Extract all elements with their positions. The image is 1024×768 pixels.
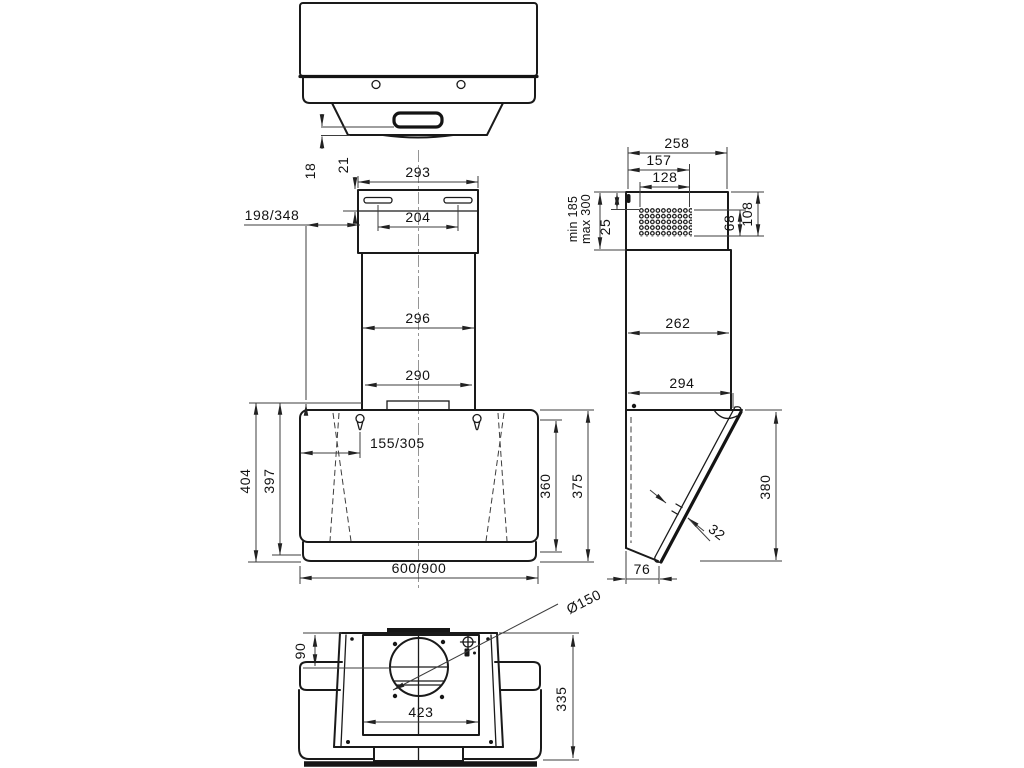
chimney-base-plate: [387, 401, 449, 410]
technical-drawing-svg: 18 21: [0, 0, 1024, 768]
mount-slot: [627, 194, 631, 203]
dim-chimney-depth: 262: [665, 315, 690, 331]
keyhole-hook: [473, 415, 481, 430]
keyhole-hook: [356, 415, 364, 430]
dim-slot-height: 18: [302, 163, 318, 180]
dim-wall-offset: 198/348: [245, 207, 300, 223]
bracket-slot: [364, 198, 392, 204]
glass-panel-side: [655, 407, 741, 563]
dim-opening-width: 423: [408, 704, 433, 720]
dim-total-height: 404: [237, 468, 253, 493]
dim-glass-length: 380: [757, 474, 773, 499]
hanger-hook-icon: [372, 81, 380, 89]
dim-duct-diameter: Ø150: [564, 586, 604, 617]
dim-duct-offset: 90: [292, 643, 308, 660]
body-side-right: [495, 662, 540, 690]
screw-dot: [489, 740, 493, 744]
hood-body-front: [300, 410, 538, 542]
front-view-dimensions: 293 204 198/348 296 290 155/305: [237, 164, 594, 584]
dim-top-depth: 258: [664, 135, 689, 151]
hood-dimension-drawing: 18 21: [0, 0, 1024, 768]
vent-perforations: [639, 208, 692, 237]
dim-telescopic-max: max 300: [579, 194, 593, 244]
bracket-slot: [444, 198, 472, 204]
front-view: 293 204 198/348 296 290 155/305: [237, 150, 594, 588]
dim-body-bottom-depth: 76: [634, 561, 651, 577]
side-view: 258 157 128 min 185 max 300 25 68: [566, 135, 782, 584]
hood-bottom-band: [303, 542, 536, 561]
dim-front-height: 375: [569, 473, 585, 498]
dim-body-height: 397: [261, 468, 277, 493]
top-view-vent-slot: [394, 113, 442, 127]
dim-telescopic-min: min 185: [566, 196, 580, 243]
bottom-view: Ø150 90 423 335: [292, 586, 604, 764]
dim-chimney-lower-width: 296: [405, 310, 430, 326]
screw-dot: [632, 404, 636, 408]
dim-hood-width: 600/900: [392, 560, 447, 576]
hanger-hook-icon: [457, 81, 465, 89]
dim-perforation-height: 68: [721, 215, 737, 232]
screw-dot: [346, 740, 350, 744]
duct-opening: [390, 636, 448, 735]
dim-vent-top-offset: 25: [597, 219, 613, 236]
dim-chimney-base-width: 290: [405, 367, 430, 383]
dim-body-depth: 294: [669, 375, 694, 391]
dim-vent-width: 157: [646, 152, 671, 168]
screw-dot: [350, 637, 354, 641]
dim-glass-height: 360: [537, 473, 553, 498]
dim-perforation-width: 128: [652, 169, 677, 185]
dim-bottom-body-depth: 335: [553, 686, 569, 711]
top-view-dimensions: 18 21: [302, 114, 394, 223]
dim-bracket-hole-spacing: 204: [405, 209, 430, 225]
top-view-glass-panel: [300, 3, 537, 76]
top-view-body-band: [303, 77, 535, 103]
top-view-chimney: [332, 103, 503, 135]
dim-hook-offset: 155/305: [370, 435, 425, 451]
dim-vent-zone-height: 108: [739, 201, 755, 226]
body-side-left: [300, 662, 342, 690]
dim-flange-height: 21: [335, 157, 351, 174]
dim-chimney-top-width: 293: [405, 164, 430, 180]
hinge-arc: [714, 410, 737, 418]
side-view-dimensions: 258 157 128 min 185 max 300 25 68: [566, 135, 782, 584]
